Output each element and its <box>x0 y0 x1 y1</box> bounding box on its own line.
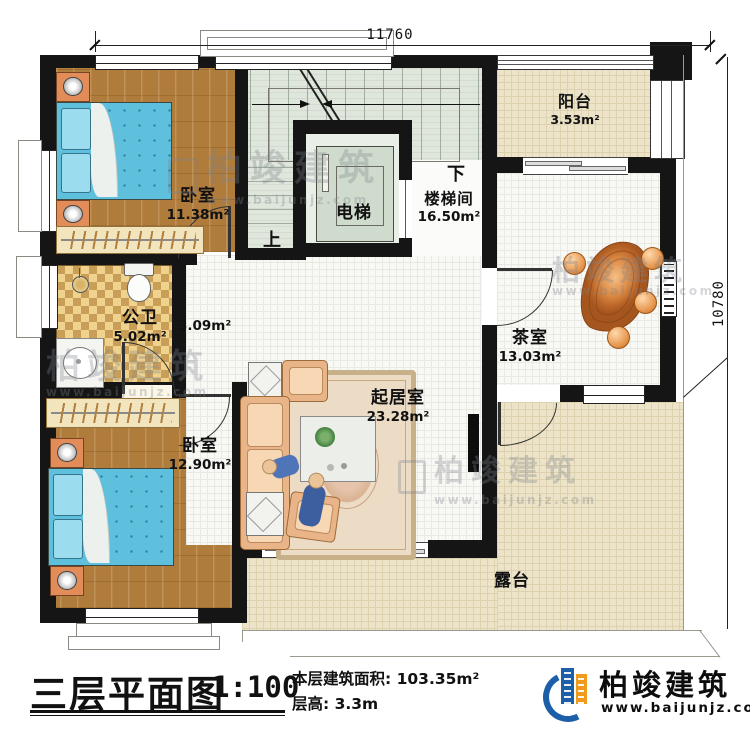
watermark: 柏竣建筑 www.baijunjz.com <box>46 350 210 398</box>
watermark-brand: 柏竣建筑 <box>206 148 382 189</box>
room-area: 5.02m² <box>106 329 174 346</box>
title-underline <box>30 710 285 713</box>
title-underline <box>30 715 285 716</box>
wall-segment <box>643 385 676 402</box>
wall-segment <box>497 157 523 173</box>
logo-icon <box>543 666 593 716</box>
terrace-step-line <box>242 630 702 631</box>
watermark-url: www.baijunjz.com <box>552 285 715 298</box>
terrace-step-line <box>290 656 720 657</box>
watermark-brand: 柏竣建筑 <box>46 347 210 387</box>
terrace-step-line <box>242 630 243 642</box>
wall-segment <box>628 157 660 173</box>
window-sill <box>16 256 42 338</box>
room-area: 23.28m² <box>338 409 458 426</box>
pillow <box>61 108 91 150</box>
nightstand <box>56 72 90 102</box>
room-label-living-room: 起居室 23.28m² <box>338 388 458 426</box>
side-table <box>246 492 284 536</box>
window-sill <box>18 140 42 232</box>
pillow <box>53 474 83 516</box>
drawing-scale: 1:100 <box>212 670 299 704</box>
wall-segment <box>40 55 56 150</box>
watermark-building-icon <box>398 460 426 494</box>
toilet-bowl <box>127 274 151 302</box>
stair-direction-line <box>252 104 300 105</box>
floor-area-text: 本层建筑面积: 103.35m² <box>292 667 479 689</box>
watermark-url: www.baijunjz.com <box>46 386 210 399</box>
watermark-brand: 柏竣建筑 <box>552 254 688 287</box>
terrace-corner-line <box>699 630 720 658</box>
bed-sheet <box>83 469 110 563</box>
window-bedroom-top <box>95 55 199 70</box>
tea-stool <box>607 326 630 349</box>
door-leaf <box>498 402 501 445</box>
wall-segment <box>560 385 583 402</box>
wardrobe-bedroom-bottom <box>46 398 180 428</box>
room-name: 楼梯间 <box>412 190 486 209</box>
elevator-shaft-wall <box>293 243 412 257</box>
wall-segment <box>197 608 247 623</box>
elevator-shaft-wall <box>293 120 412 134</box>
wall-segment <box>428 540 497 558</box>
dimension-line-right <box>727 57 728 629</box>
watermark-url: www.baijunjz.com <box>434 494 597 507</box>
cushion <box>247 403 283 447</box>
nightstand <box>50 438 84 468</box>
dimension-leader-line <box>683 358 728 398</box>
shower-head-icon <box>72 276 89 293</box>
wall-segment <box>390 55 497 68</box>
elevator-door-line <box>405 180 406 238</box>
stair-arrow-icon <box>300 100 310 108</box>
shower-hose-line <box>79 268 80 278</box>
room-label-bedroom-bottom: 卧室 12.90m² <box>160 436 240 474</box>
dimension-tick <box>715 53 727 65</box>
stair-direction-line <box>332 104 480 105</box>
bed-bedroom-top <box>56 102 172 200</box>
floor-terrace-bottom <box>242 558 497 630</box>
room-name: 卧室 <box>160 436 240 457</box>
watermark-building-icon <box>168 158 198 194</box>
window-bathroom <box>40 265 58 329</box>
dimension-line-top <box>95 45 710 46</box>
cushion <box>289 367 323 395</box>
window-tea-room-south <box>583 385 645 404</box>
nightstand <box>56 200 90 228</box>
watermark: 柏竣建筑 www.baijunjz.com <box>552 256 715 298</box>
side-table <box>248 362 282 400</box>
room-label-hallway: 3.09m² <box>178 318 231 334</box>
watermark-url: www.baijunjz.com <box>206 194 382 207</box>
room-name: 阳台 <box>535 92 615 112</box>
room-area: 16.50m² <box>412 209 486 226</box>
plant-icon <box>315 427 335 447</box>
room-label-terrace: 露台 <box>494 566 530 591</box>
room-label-bathroom: 公卫 5.02m² <box>106 308 174 346</box>
person-body <box>297 483 327 529</box>
floor-plan: 11760 10780 卧室 11.38m² 公卫 5.02m² 3.09m² … <box>0 0 750 729</box>
dimension-width-label: 11760 <box>330 27 450 43</box>
stairs-down-label: 下 <box>447 160 466 186</box>
watermark: 柏竣建筑 www.baijunjz.com <box>398 456 597 506</box>
bed-sheet <box>91 103 118 197</box>
balcony-rail-right <box>650 80 685 159</box>
pillow <box>53 519 83 559</box>
room-area: 12.90m² <box>160 457 240 474</box>
logo-website: www.baijunjz.com <box>601 700 750 716</box>
elevator-shaft-wall <box>399 120 412 180</box>
window-stairwell <box>215 55 392 70</box>
nightstand <box>50 566 84 596</box>
room-area: 3.53m² <box>535 112 615 128</box>
plot-boundary-line <box>683 55 684 630</box>
stair-arrow-icon <box>322 100 332 108</box>
stairs-up-label: 上 <box>263 226 282 252</box>
company-logo: 柏竣建筑 www.baijunjz.com <box>543 660 743 722</box>
logo-brand-name: 柏竣建筑 <box>599 662 731 704</box>
bed-bedroom-bottom <box>48 468 174 566</box>
room-area: 11.38m² <box>158 207 238 224</box>
room-label-balcony: 阳台 3.53m² <box>535 92 615 128</box>
armchair <box>282 360 328 402</box>
table-item <box>327 464 334 471</box>
room-label-tea-room: 茶室 13.03m² <box>494 328 566 366</box>
wardrobe-bedroom-top <box>56 226 204 254</box>
room-name: 起居室 <box>338 388 458 409</box>
pillow <box>61 153 91 193</box>
watermark-brand: 柏竣建筑 <box>434 454 582 489</box>
table-item <box>341 463 347 469</box>
balcony-rail-top <box>497 55 654 70</box>
room-area: 13.03m² <box>494 349 566 366</box>
door-gap-tea-room <box>482 268 497 325</box>
logo-building-orange <box>576 674 587 704</box>
room-label-stairwell: 楼梯间 16.50m² <box>412 190 486 226</box>
window-sill <box>68 636 220 650</box>
watermark: 柏竣建筑 www.baijunjz.com <box>168 150 382 206</box>
room-name: 茶室 <box>494 328 566 349</box>
wall-segment <box>40 608 85 623</box>
wall-segment <box>650 42 692 80</box>
room-name: 公卫 <box>106 308 174 329</box>
floor-height-text: 层高: 3.3m <box>292 692 378 714</box>
sliding-door-balcony <box>523 157 628 175</box>
door-leaf <box>497 268 552 271</box>
logo-building-blue <box>561 668 574 704</box>
